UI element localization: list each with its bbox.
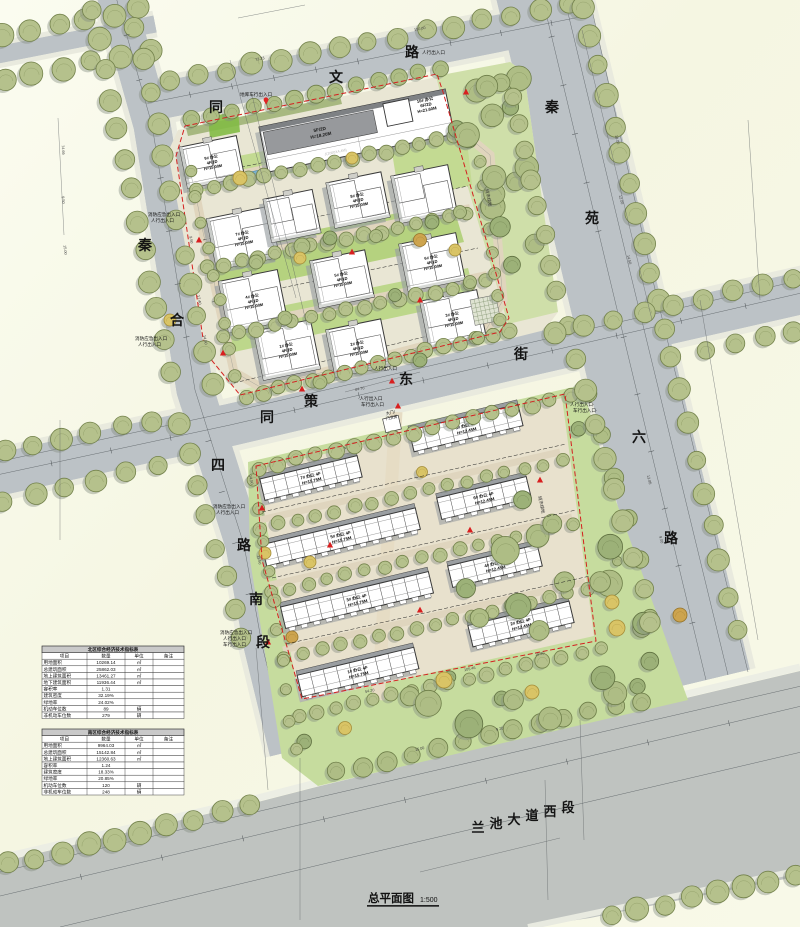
- svg-text:人行出入口: 人行出入口: [138, 341, 161, 348]
- svg-text:人行出入口: 人行出入口: [374, 365, 397, 372]
- svg-text:机动车位数: 机动车位数: [44, 782, 67, 789]
- svg-text:车行出入口: 车行出入口: [361, 401, 384, 408]
- svg-text:非机动车位数: 非机动车位数: [44, 788, 72, 795]
- svg-text:绿地率: 绿地率: [44, 775, 58, 782]
- svg-text:辆: 辆: [137, 782, 142, 789]
- svg-text:㎡: ㎡: [137, 679, 142, 685]
- svg-text:单位: 单位: [134, 653, 144, 660]
- svg-text:车行出入口·: 车行出入口·: [573, 407, 598, 414]
- svg-text:车行出入口: 车行出入口: [223, 641, 246, 648]
- svg-text:段: 段: [561, 800, 574, 815]
- svg-text:㎡: ㎡: [137, 672, 142, 678]
- svg-text:人行出入口: 人行出入口: [216, 509, 239, 516]
- svg-text:辆: 辆: [137, 788, 142, 795]
- svg-text:人行出入口: 人行出入口: [223, 635, 246, 642]
- svg-text:25862.03: 25862.03: [96, 667, 116, 672]
- svg-text:备注: 备注: [164, 653, 174, 660]
- svg-text:南区综合经济技术指标表: 南区综合经济技术指标表: [88, 729, 139, 736]
- svg-text:32.19%: 32.19%: [98, 693, 114, 698]
- svg-text:苑: 苑: [584, 210, 599, 226]
- svg-text:消防应急出入口: 消防应急出入口: [213, 503, 246, 510]
- svg-text:大: 大: [507, 812, 520, 827]
- svg-text:文: 文: [329, 69, 344, 85]
- svg-text:数量: 数量: [101, 736, 111, 743]
- svg-text:279: 279: [102, 713, 110, 718]
- svg-text:建筑密度: 建筑密度: [44, 692, 63, 699]
- svg-text:机动车位数: 机动车位数: [44, 705, 67, 712]
- svg-text:单位: 单位: [134, 736, 144, 743]
- svg-text:13461.27: 13461.27: [96, 673, 116, 678]
- svg-text:10269.14: 10269.14: [96, 660, 116, 665]
- svg-text:11936.44: 11936.44: [97, 680, 116, 685]
- svg-text:消防应急出入口: 消防应急出入口: [220, 629, 253, 636]
- svg-text:秦: 秦: [137, 237, 153, 253]
- svg-text:地下建筑面积: 地下建筑面积: [44, 679, 72, 686]
- svg-text:12360.63: 12360.63: [96, 756, 116, 761]
- svg-text:消防应急出入口: 消防应急出入口: [148, 211, 181, 218]
- svg-text:89: 89: [103, 706, 109, 711]
- svg-text:㎡: ㎡: [137, 749, 142, 755]
- svg-text:东: 东: [399, 371, 413, 387]
- svg-text:数量: 数量: [101, 653, 111, 660]
- svg-text:用地面积: 用地面积: [44, 742, 63, 749]
- svg-text:1:500: 1:500: [420, 897, 438, 904]
- svg-text:绿地率: 绿地率: [44, 699, 58, 706]
- svg-text:秦: 秦: [544, 99, 560, 115]
- svg-text:人行出入口: 人行出入口: [422, 49, 445, 56]
- svg-text:路: 路: [405, 44, 420, 60]
- svg-text:同: 同: [260, 409, 274, 425]
- svg-text:1.31: 1.31: [102, 687, 111, 692]
- svg-text:备注: 备注: [164, 736, 174, 743]
- svg-text:街: 街: [513, 346, 528, 362]
- svg-text:总建筑面积: 总建筑面积: [44, 666, 67, 673]
- svg-text:合: 合: [170, 312, 185, 328]
- svg-text:9964.03: 9964.03: [98, 743, 115, 748]
- svg-text:9.50: 9.50: [61, 196, 66, 204]
- svg-text:人行出入口: 人行出入口: [151, 217, 174, 224]
- svg-text:15142.84: 15142.84: [96, 750, 116, 755]
- svg-text:120: 120: [102, 783, 110, 788]
- svg-text:地上建筑面积: 地上建筑面积: [44, 672, 72, 679]
- svg-text:六: 六: [632, 429, 646, 445]
- svg-text:四: 四: [211, 457, 225, 473]
- svg-text:消防应急出入口: 消防应急出入口: [135, 335, 168, 342]
- svg-text:兰: 兰: [471, 820, 484, 835]
- svg-text:容积率: 容积率: [44, 686, 58, 693]
- svg-text:辆: 辆: [137, 712, 142, 719]
- svg-text:㎡: ㎡: [137, 755, 142, 761]
- svg-text:18.33%: 18.33%: [98, 770, 114, 775]
- svg-text:·人行出入口: ·人行出入口: [358, 395, 383, 402]
- svg-text:西: 西: [543, 804, 556, 819]
- svg-text:总平面图: 总平面图: [368, 891, 414, 905]
- svg-text:1.24: 1.24: [102, 763, 111, 768]
- svg-text:地库车行出入口: 地库车行出入口: [240, 91, 273, 98]
- svg-text:24.02%: 24.02%: [98, 700, 114, 705]
- svg-text:㎡: ㎡: [137, 742, 142, 748]
- svg-text:用地面积: 用地面积: [44, 659, 63, 666]
- svg-text:非机动车位数: 非机动车位数: [44, 712, 72, 719]
- svg-text:辆: 辆: [137, 705, 142, 712]
- svg-text:池: 池: [489, 816, 502, 831]
- svg-text:同: 同: [209, 99, 223, 115]
- svg-text:㎡: ㎡: [137, 666, 142, 672]
- svg-text:北区综合经济技术指标表: 北区综合经济技术指标表: [88, 646, 139, 653]
- svg-text:㎡: ㎡: [137, 659, 142, 665]
- svg-text:道: 道: [525, 808, 538, 823]
- svg-text:总建筑面积: 总建筑面积: [44, 749, 67, 756]
- svg-text:容积率: 容积率: [44, 762, 58, 769]
- svg-text:20.85%: 20.85%: [98, 776, 114, 781]
- svg-text:路: 路: [237, 537, 252, 553]
- svg-text:人行出入口·: 人行出入口·: [570, 401, 595, 408]
- svg-text:段: 段: [256, 634, 270, 650]
- svg-text:地上建筑面积: 地上建筑面积: [44, 755, 72, 762]
- svg-text:路: 路: [664, 530, 679, 546]
- svg-text:建筑密度: 建筑密度: [44, 769, 63, 776]
- svg-text:248: 248: [102, 789, 110, 794]
